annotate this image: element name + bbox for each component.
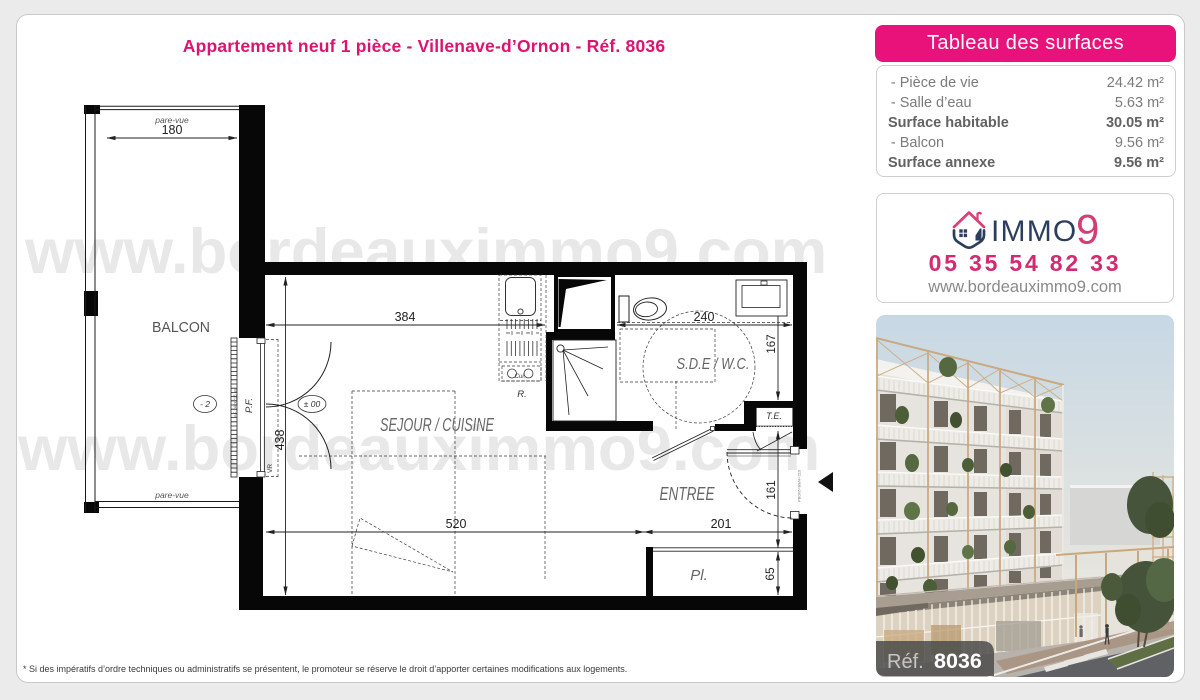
- svg-text:P.F.: P.F.: [244, 398, 255, 413]
- svg-text:± 00: ± 00: [304, 399, 321, 409]
- svg-text:Pl.: Pl.: [690, 567, 708, 584]
- svg-text:T.E.: T.E.: [766, 411, 782, 421]
- svg-text:384: 384: [395, 310, 416, 324]
- svg-text:pare-vue: pare-vue: [154, 115, 189, 125]
- svg-text:AF 240x215 av: AF 240x215 av: [233, 388, 238, 417]
- svg-text:ENTREE: ENTREE: [660, 484, 716, 504]
- svg-text:438: 438: [273, 430, 287, 451]
- svg-text:PB0X6=89/H=210: PB0X6=89/H=210: [797, 469, 802, 502]
- svg-text:520: 520: [446, 517, 467, 531]
- svg-text:240: 240: [694, 310, 715, 324]
- svg-text:161: 161: [766, 480, 778, 499]
- svg-text:VR: VR: [267, 464, 274, 473]
- svg-text:167: 167: [766, 334, 778, 353]
- svg-text:SEJOUR / CUISINE: SEJOUR / CUISINE: [380, 415, 495, 435]
- svg-text:pare-vue: pare-vue: [154, 490, 189, 500]
- svg-text:8036: 8036: [934, 649, 982, 673]
- svg-text:201: 201: [711, 517, 732, 531]
- svg-text:R.: R.: [517, 389, 527, 400]
- svg-text:65: 65: [763, 567, 777, 581]
- svg-text:- 2: - 2: [200, 399, 210, 409]
- svg-text:S.D.E / W.C.: S.D.E / W.C.: [677, 356, 750, 373]
- svg-text:Réf.: Réf.: [887, 651, 924, 673]
- svg-text:180: 180: [162, 123, 183, 137]
- svg-text:BALCON: BALCON: [152, 319, 210, 336]
